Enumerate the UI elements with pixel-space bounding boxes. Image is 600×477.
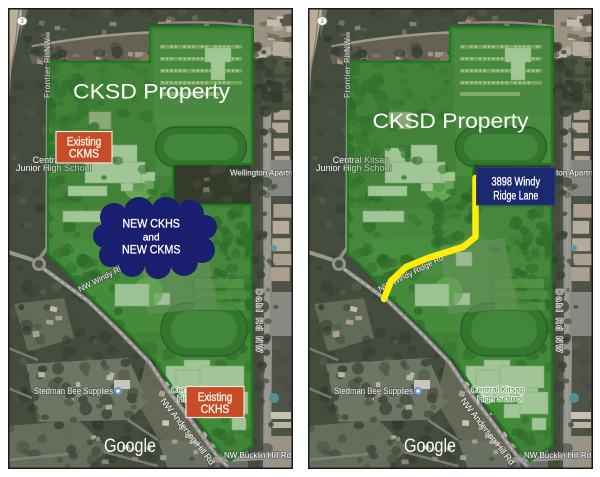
svg-text:NEW CKMS: NEW CKMS: [122, 244, 181, 257]
svg-text:CKHS: CKHS: [201, 404, 230, 416]
svg-text:Existing: Existing: [198, 392, 233, 404]
svg-text:CKSD Property: CKSD Property: [373, 109, 529, 133]
svg-text:Existing: Existing: [67, 136, 102, 148]
svg-text:Ridge Lane: Ridge Lane: [493, 190, 538, 202]
svg-text:3898 Windy: 3898 Windy: [492, 176, 541, 188]
svg-text:NEW CKHS: NEW CKHS: [122, 217, 180, 230]
svg-text:CKSD Property: CKSD Property: [73, 80, 230, 104]
svg-text:CKMS: CKMS: [69, 149, 99, 161]
svg-text:and: and: [143, 232, 160, 243]
